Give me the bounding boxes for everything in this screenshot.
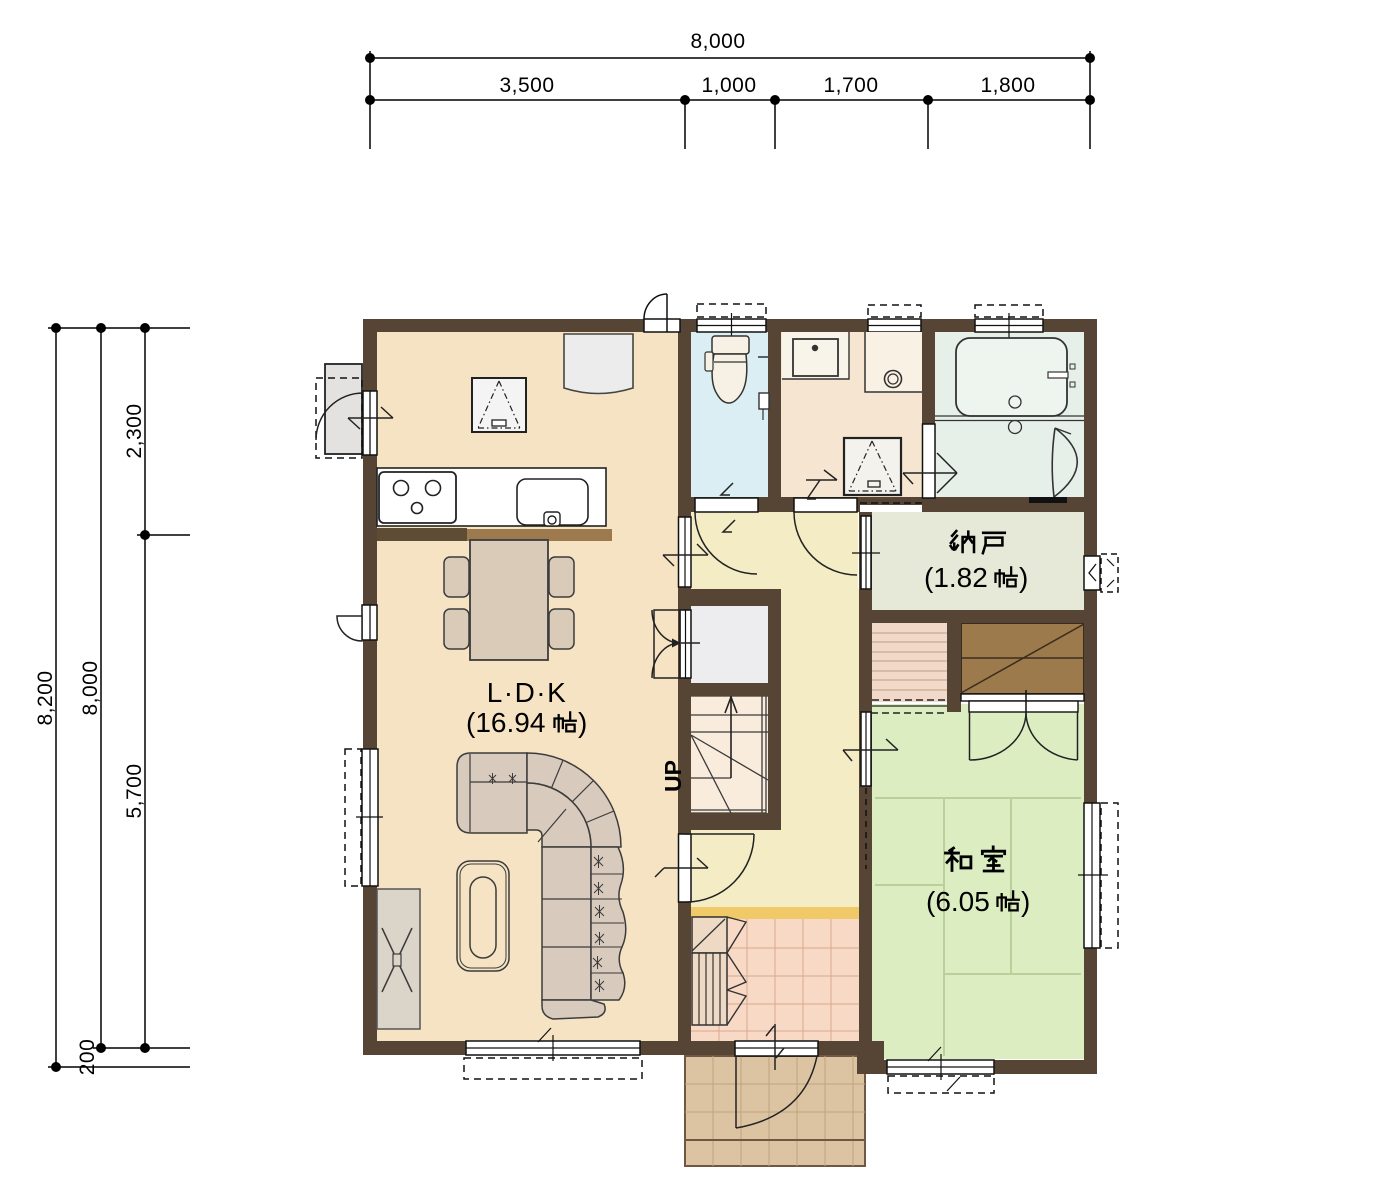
svg-text:8,000: 8,000 (79, 660, 102, 715)
svg-text:3,500: 3,500 (499, 74, 554, 97)
svg-text:1,800: 1,800 (980, 74, 1035, 97)
svg-text:8,200: 8,200 (34, 670, 57, 725)
svg-text:1,000: 1,000 (701, 74, 756, 97)
svg-text:200: 200 (76, 1039, 99, 1076)
svg-text:2,300: 2,300 (123, 403, 146, 458)
svg-text:(6.05: (6.05 (926, 886, 990, 917)
svg-text:): ) (1019, 562, 1028, 593)
svg-text:8,000: 8,000 (690, 30, 745, 53)
svg-text:UP: UP (660, 760, 686, 792)
svg-text:(16.94: (16.94 (466, 707, 545, 738)
svg-text:): ) (578, 707, 587, 738)
svg-text:1,700: 1,700 (823, 74, 878, 97)
svg-text:(1.82: (1.82 (924, 562, 988, 593)
svg-text:5,700: 5,700 (123, 763, 146, 818)
svg-text:L·D·K: L·D·K (487, 677, 568, 708)
svg-text:): ) (1021, 886, 1030, 917)
